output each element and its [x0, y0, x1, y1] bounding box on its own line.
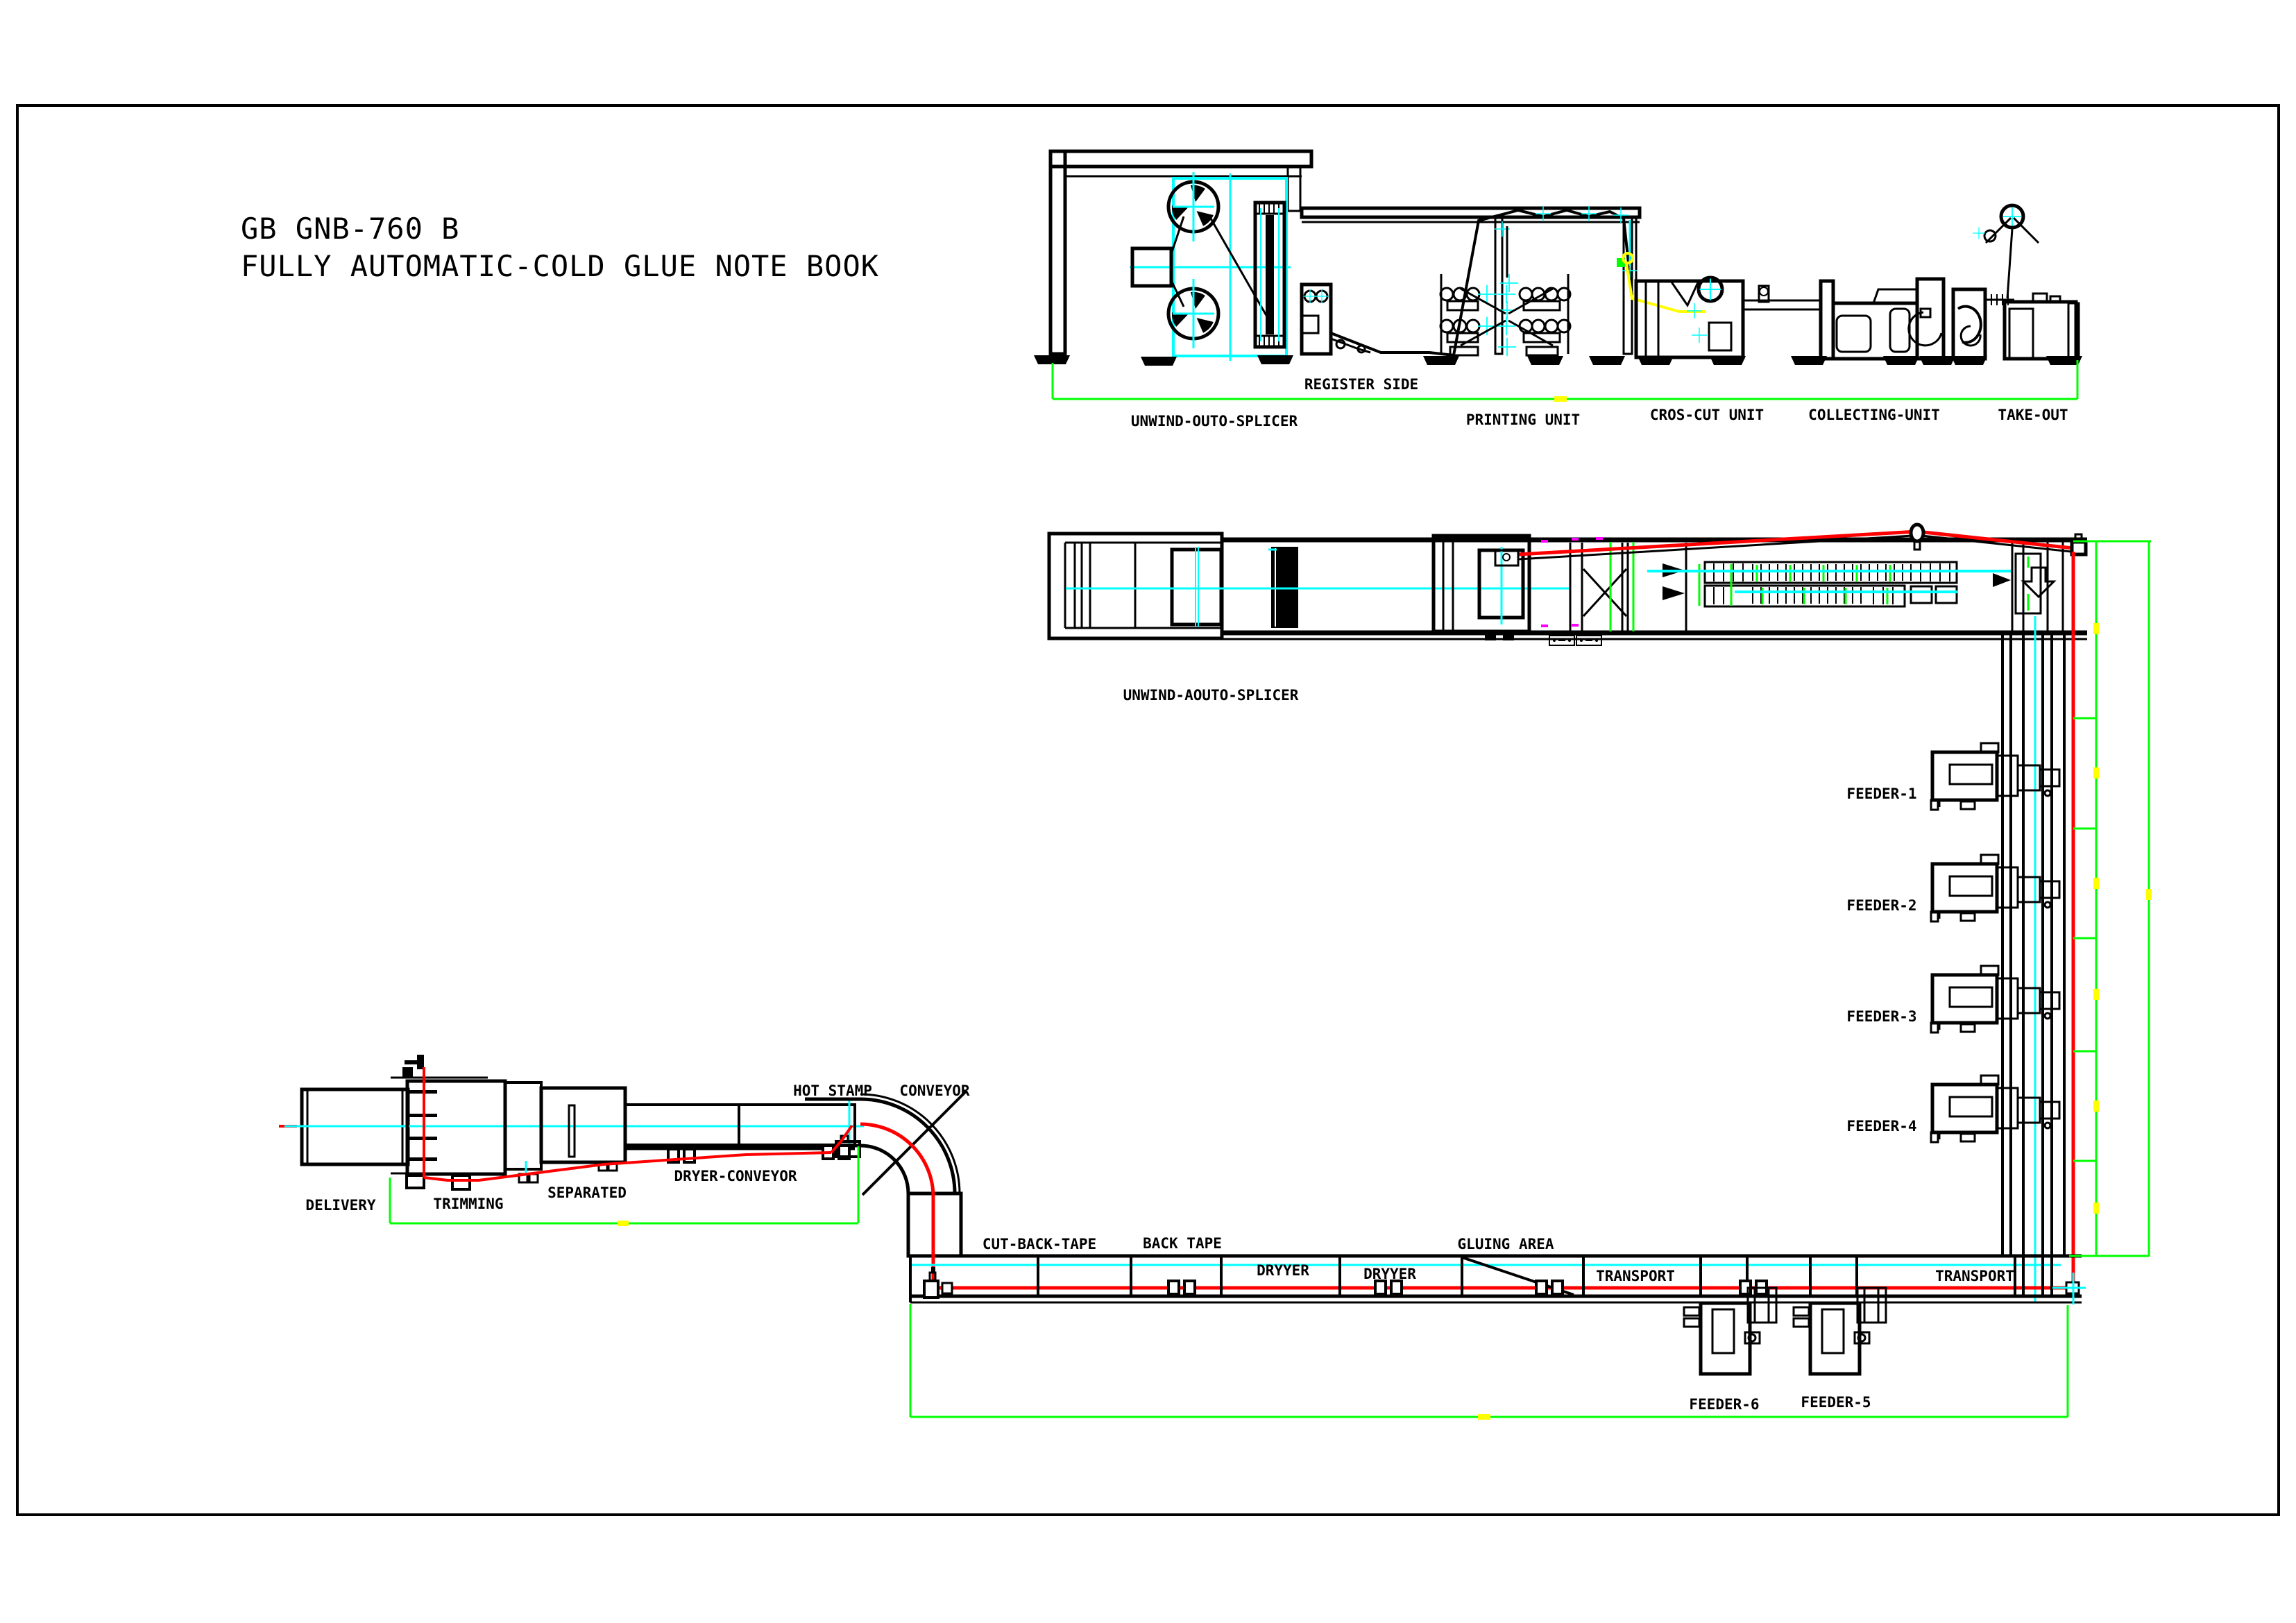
cad-drawing-page: GB GNB-760 B FULLY AUTOMATIC-COLD GLUE N… — [0, 0, 2296, 1623]
top-dimension — [1053, 360, 2077, 402]
drawing-title-line1: GB GNB-760 B — [241, 212, 459, 246]
label-hot-stamp: HOT STAMP — [793, 1082, 872, 1099]
feeder-unit-5 — [1794, 1288, 1886, 1374]
dimension-callout-boxes — [1549, 636, 1601, 645]
label-register-side: REGISTER SIDE — [1304, 376, 1418, 393]
right-dimension — [2069, 541, 2152, 1256]
flow-arrow-down-icon — [2023, 568, 2054, 597]
label-dryer-conveyor: DRYER-CONVEYOR — [674, 1168, 797, 1184]
feeder-unit-3 — [1931, 966, 2059, 1033]
take-out-machine — [1973, 205, 2079, 359]
glue-gun-icon — [924, 1267, 952, 1298]
cros-cut-unit-machine — [1617, 253, 1821, 357]
label-feeder-6: FEEDER-6 — [1689, 1396, 1759, 1413]
web-roof-path — [1495, 525, 2086, 566]
bottom-dimension — [910, 1304, 2068, 1420]
unwind-splicer-gantry — [1051, 151, 1370, 361]
machine-layout-drawing: GB GNB-760 B FULLY AUTOMATIC-COLD GLUE N… — [0, 0, 2296, 1623]
label-unwind-plan: UNWIND-AOUTO-SPLICER — [1123, 687, 1299, 704]
feeder-unit-1 — [1931, 743, 2059, 810]
trimming-machine — [391, 1055, 541, 1189]
label-gluing-area: GLUING AREA — [1457, 1236, 1554, 1252]
label-feeder-5: FEEDER-5 — [1801, 1394, 1871, 1411]
side-elevation-view — [1034, 151, 2082, 366]
apex-pulley-icon — [1911, 525, 1923, 541]
label-dryyer-2: DRYYER — [1363, 1266, 1416, 1282]
label-feeder-4: FEEDER-4 — [1846, 1118, 1916, 1135]
printing-unit-machine — [1302, 206, 1640, 356]
label-collecting-unit: COLLECTING-UNIT — [1808, 407, 1940, 423]
label-cros-cut-unit: CROS-CUT UNIT — [1650, 407, 1764, 423]
print-cylinders — [1440, 226, 1570, 356]
label-printing-unit: PRINTING UNIT — [1466, 411, 1580, 428]
finishing-line — [279, 1055, 2086, 1374]
feeder-unit-2 — [1931, 855, 2059, 921]
festoon-accumulator — [1255, 203, 1284, 347]
collecting-conveyor-plan — [1610, 542, 2063, 632]
label-cut-back-tape: CUT-BACK-TAPE — [983, 1236, 1096, 1252]
dimension-lines — [390, 360, 2152, 1420]
label-feeder-2: FEEDER-2 — [1846, 897, 1916, 914]
feeder-unit-4 — [1931, 1076, 2059, 1142]
label-trimming: TRIMMING — [433, 1196, 503, 1212]
feeder-transport-run — [1931, 552, 2073, 1303]
collecting-unit-machine — [1821, 279, 1985, 359]
plan-view — [1049, 525, 2087, 1303]
label-feeder-1: FEEDER-1 — [1846, 785, 1916, 802]
label-transport-2: TRANSPORT — [1935, 1268, 2014, 1284]
label-separated: SEPARATED — [547, 1184, 627, 1201]
label-back-tape: BACK TAPE — [1143, 1235, 1222, 1252]
bottom-conveyor-band — [910, 1256, 2086, 1374]
paper-roll-icon — [1168, 172, 1218, 241]
feeder-unit-6 — [1684, 1288, 1776, 1374]
drawing-title-line2: FULLY AUTOMATIC-COLD GLUE NOTE BOOK — [241, 249, 879, 283]
label-unwind-splicer: UNWIND-OUTO-SPLICER — [1131, 413, 1298, 430]
label-feeder-3: FEEDER-3 — [1846, 1008, 1916, 1025]
label-transport-1: TRANSPORT — [1596, 1268, 1675, 1284]
label-delivery: DELIVERY — [305, 1197, 376, 1214]
label-conveyor: CONVEYOR — [899, 1082, 970, 1099]
label-take-out: TAKE-OUT — [1998, 407, 2068, 423]
title-block: GB GNB-760 B FULLY AUTOMATIC-COLD GLUE N… — [241, 212, 879, 283]
label-dryyer-1: DRYYER — [1257, 1262, 1309, 1279]
unwind-splicer-plan — [1049, 534, 1298, 638]
